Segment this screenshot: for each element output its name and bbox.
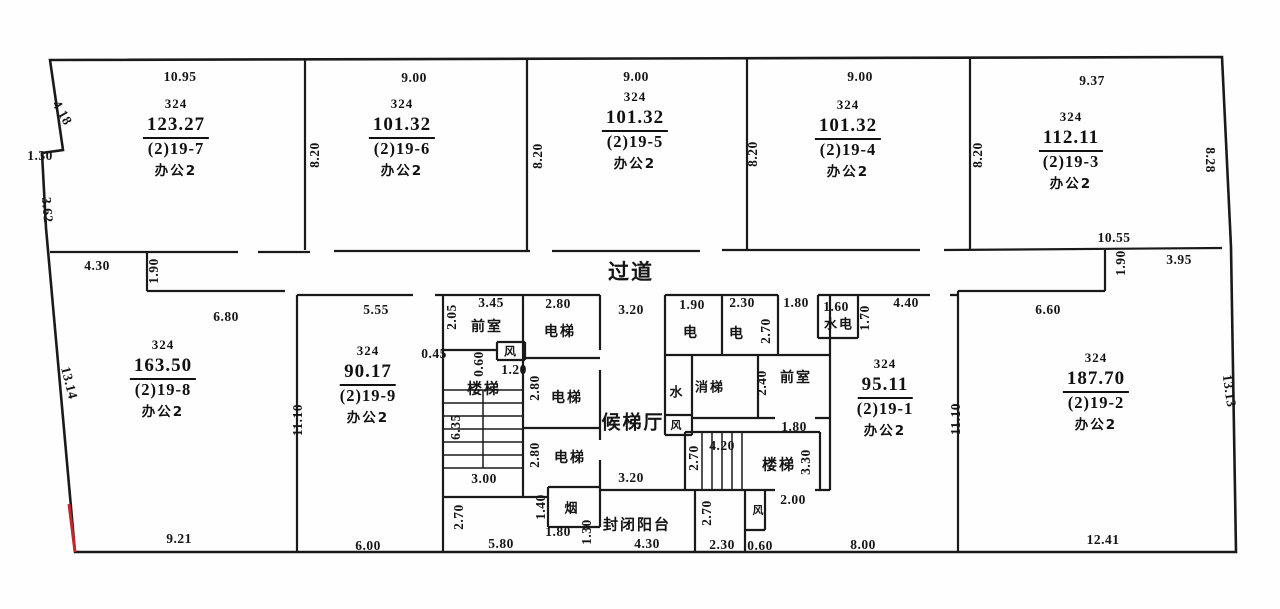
unit-area-value: 163.50 bbox=[130, 355, 196, 380]
dim-label: 4.30 bbox=[634, 536, 660, 552]
dim-label: 10.95 bbox=[164, 69, 197, 85]
dim-label: 3.30 bbox=[798, 449, 814, 475]
dim-label: 6.35 bbox=[448, 414, 464, 440]
dim-label: 1.80 bbox=[545, 524, 571, 540]
stairs-label: 楼梯 bbox=[467, 378, 501, 399]
unit-number: (2)19-2 bbox=[1068, 391, 1124, 412]
stairs-label: 楼梯 bbox=[762, 454, 796, 475]
unit-annotation-(2)19-4: 324101.32(2)19-4办公2 bbox=[815, 96, 881, 181]
unit-use-label: 办公2 bbox=[614, 156, 656, 172]
unit-annotation-(2)19-3: 324112.11(2)19-3办公2 bbox=[1039, 108, 1103, 193]
anteroom-label: 前室 bbox=[780, 367, 812, 387]
dim-label: 1.90 bbox=[146, 258, 162, 284]
dim-label: 3.20 bbox=[618, 470, 644, 486]
unit-annotation-(2)19-5: 324101.32(2)19-5办公2 bbox=[602, 88, 668, 173]
dim-label: 2.80 bbox=[545, 296, 571, 312]
dim-label: 8.20 bbox=[970, 142, 986, 168]
unit-parcel-number: 324 bbox=[357, 343, 380, 358]
dim-label: 11.10 bbox=[290, 404, 306, 436]
dim-label: 11.10 bbox=[948, 403, 964, 435]
unit-annotation-(2)19-2: 324187.70(2)19-2办公2 bbox=[1063, 349, 1129, 434]
dim-label: 2.00 bbox=[780, 492, 806, 508]
dim-label: 6.60 bbox=[1035, 302, 1061, 318]
dim-label: 6.00 bbox=[355, 538, 381, 554]
dim-label: 12.41 bbox=[1087, 532, 1120, 548]
dim-label: 4.30 bbox=[84, 258, 110, 274]
dim-label: 5.55 bbox=[363, 302, 389, 318]
electric-shaft-label: 电 bbox=[729, 323, 745, 343]
unit-use-label: 办公2 bbox=[142, 404, 184, 420]
unit-number: (2)19-9 bbox=[340, 384, 396, 405]
dim-label: 10.55 bbox=[1098, 230, 1131, 246]
unit-annotation-(2)19-7: 324123.27(2)19-7办公2 bbox=[143, 95, 209, 180]
unit-area-value: 90.17 bbox=[340, 361, 396, 386]
smoke-shaft-label: 烟 bbox=[564, 498, 579, 517]
unit-parcel-number: 324 bbox=[624, 89, 647, 104]
unit-use-label: 办公2 bbox=[1075, 417, 1117, 433]
floor-plan: 324123.27(2)19-7办公2324101.32(2)19-6办公232… bbox=[0, 0, 1280, 609]
unit-use-label: 办公2 bbox=[347, 410, 389, 426]
dim-label: 5.80 bbox=[488, 536, 514, 552]
unit-parcel-number: 324 bbox=[152, 337, 175, 352]
unit-use-label: 办公2 bbox=[381, 163, 423, 179]
unit-parcel-number: 324 bbox=[874, 356, 897, 371]
dim-label: 3.95 bbox=[1166, 252, 1192, 268]
dim-label: 9.21 bbox=[166, 531, 192, 547]
dim-label: 8.20 bbox=[530, 143, 546, 169]
dim-label: 1.90 bbox=[1113, 250, 1129, 276]
unit-use-label: 办公2 bbox=[827, 164, 869, 180]
dim-label: 1.70 bbox=[857, 305, 873, 331]
dim-label: 9.00 bbox=[847, 69, 873, 85]
unit-area-value: 123.27 bbox=[143, 114, 209, 139]
dim-label: 9.00 bbox=[623, 69, 649, 85]
fire-elevator-label: 消梯 bbox=[695, 377, 725, 396]
anteroom-label: 前室 bbox=[471, 316, 503, 336]
unit-number: (2)19-8 bbox=[135, 378, 191, 399]
dim-label: 8.00 bbox=[850, 537, 876, 553]
dim-label: 2.70 bbox=[699, 500, 715, 526]
air-shaft-label: 风 bbox=[753, 502, 766, 518]
unit-area-value: 101.32 bbox=[602, 107, 668, 132]
air-shaft-label: 风 bbox=[504, 343, 518, 360]
unit-number: (2)19-5 bbox=[607, 130, 663, 151]
unit-annotation-(2)19-6: 324101.32(2)19-6办公2 bbox=[369, 95, 435, 180]
elevator-label: 电梯 bbox=[544, 321, 576, 341]
dim-label: 1.40 bbox=[533, 494, 549, 520]
unit-area-value: 95.11 bbox=[858, 374, 913, 399]
elevator-label: 电梯 bbox=[551, 387, 583, 407]
unit-number: (2)19-7 bbox=[148, 137, 204, 158]
unit-annotation-(2)19-9: 32490.17(2)19-9办公2 bbox=[340, 342, 396, 427]
unit-number: (2)19-1 bbox=[857, 397, 913, 418]
unit-annotation-(2)19-8: 324163.50(2)19-8办公2 bbox=[130, 336, 196, 421]
unit-parcel-number: 324 bbox=[837, 97, 860, 112]
dim-label: 1.30 bbox=[27, 148, 53, 164]
unit-area-value: 112.11 bbox=[1039, 127, 1103, 152]
unit-parcel-number: 324 bbox=[391, 96, 414, 111]
dim-label: 2.80 bbox=[527, 375, 543, 401]
dim-label: 1.80 bbox=[781, 419, 807, 435]
dim-label: 8.28 bbox=[1202, 147, 1218, 173]
dim-label: 0.45 bbox=[421, 346, 447, 362]
enclosed-balcony-label: 封闭阳台 bbox=[603, 514, 671, 535]
dim-label: 6.80 bbox=[213, 309, 239, 325]
unit-number: (2)19-6 bbox=[374, 137, 430, 158]
dim-label: 3.20 bbox=[618, 302, 644, 318]
dim-label: 2.05 bbox=[444, 304, 460, 330]
dim-label: 2.30 bbox=[709, 537, 735, 553]
elevator-lobby-label: 候梯厅 bbox=[601, 408, 664, 435]
dim-label: 8.20 bbox=[307, 142, 323, 168]
dim-label: 1.20 bbox=[501, 362, 527, 378]
unit-use-label: 办公2 bbox=[864, 423, 906, 439]
unit-annotation-(2)19-1: 32495.11(2)19-1办公2 bbox=[857, 355, 913, 440]
unit-parcel-number: 324 bbox=[1085, 350, 1108, 365]
unit-use-label: 办公2 bbox=[1050, 176, 1092, 192]
dim-label: 0.60 bbox=[747, 538, 773, 554]
dim-label: 2.70 bbox=[686, 445, 702, 471]
dim-label: 0.60 bbox=[471, 351, 487, 377]
unit-parcel-number: 324 bbox=[1060, 109, 1083, 124]
dim-label: 3.62 bbox=[38, 197, 56, 224]
air-shaft-label: 风 bbox=[671, 417, 684, 433]
dim-label: 1.80 bbox=[783, 295, 809, 311]
water-electric-label: 水电 bbox=[824, 314, 854, 333]
unit-area-value: 187.70 bbox=[1063, 368, 1129, 393]
dim-label: 4.40 bbox=[893, 295, 919, 311]
dim-label: 2.80 bbox=[527, 442, 543, 468]
water-shaft-label: 水 bbox=[669, 382, 684, 401]
elevator-label: 电梯 bbox=[554, 447, 586, 467]
electric-shaft-label: 电 bbox=[683, 322, 699, 342]
dim-label: 8.20 bbox=[745, 141, 761, 167]
dim-label: 1.30 bbox=[579, 519, 595, 545]
unit-area-value: 101.32 bbox=[815, 115, 881, 140]
unit-area-value: 101.32 bbox=[369, 114, 435, 139]
dim-label: 9.37 bbox=[1079, 73, 1105, 89]
unit-number: (2)19-4 bbox=[820, 138, 876, 159]
unit-number: (2)19-3 bbox=[1043, 150, 1099, 171]
dim-label: 9.00 bbox=[401, 70, 427, 86]
dim-label: 4.20 bbox=[709, 438, 735, 454]
corridor-label: 过道 bbox=[608, 256, 654, 286]
unit-use-label: 办公2 bbox=[155, 163, 197, 179]
dim-label: 3.45 bbox=[478, 295, 504, 311]
dim-label: 2.40 bbox=[754, 370, 770, 396]
dim-label: 2.30 bbox=[729, 295, 755, 311]
dim-label: 3.00 bbox=[471, 471, 497, 487]
dim-label: 1.90 bbox=[679, 297, 705, 313]
unit-parcel-number: 324 bbox=[165, 96, 188, 111]
dim-label: 2.70 bbox=[758, 318, 774, 344]
dim-label: 2.70 bbox=[451, 504, 467, 530]
